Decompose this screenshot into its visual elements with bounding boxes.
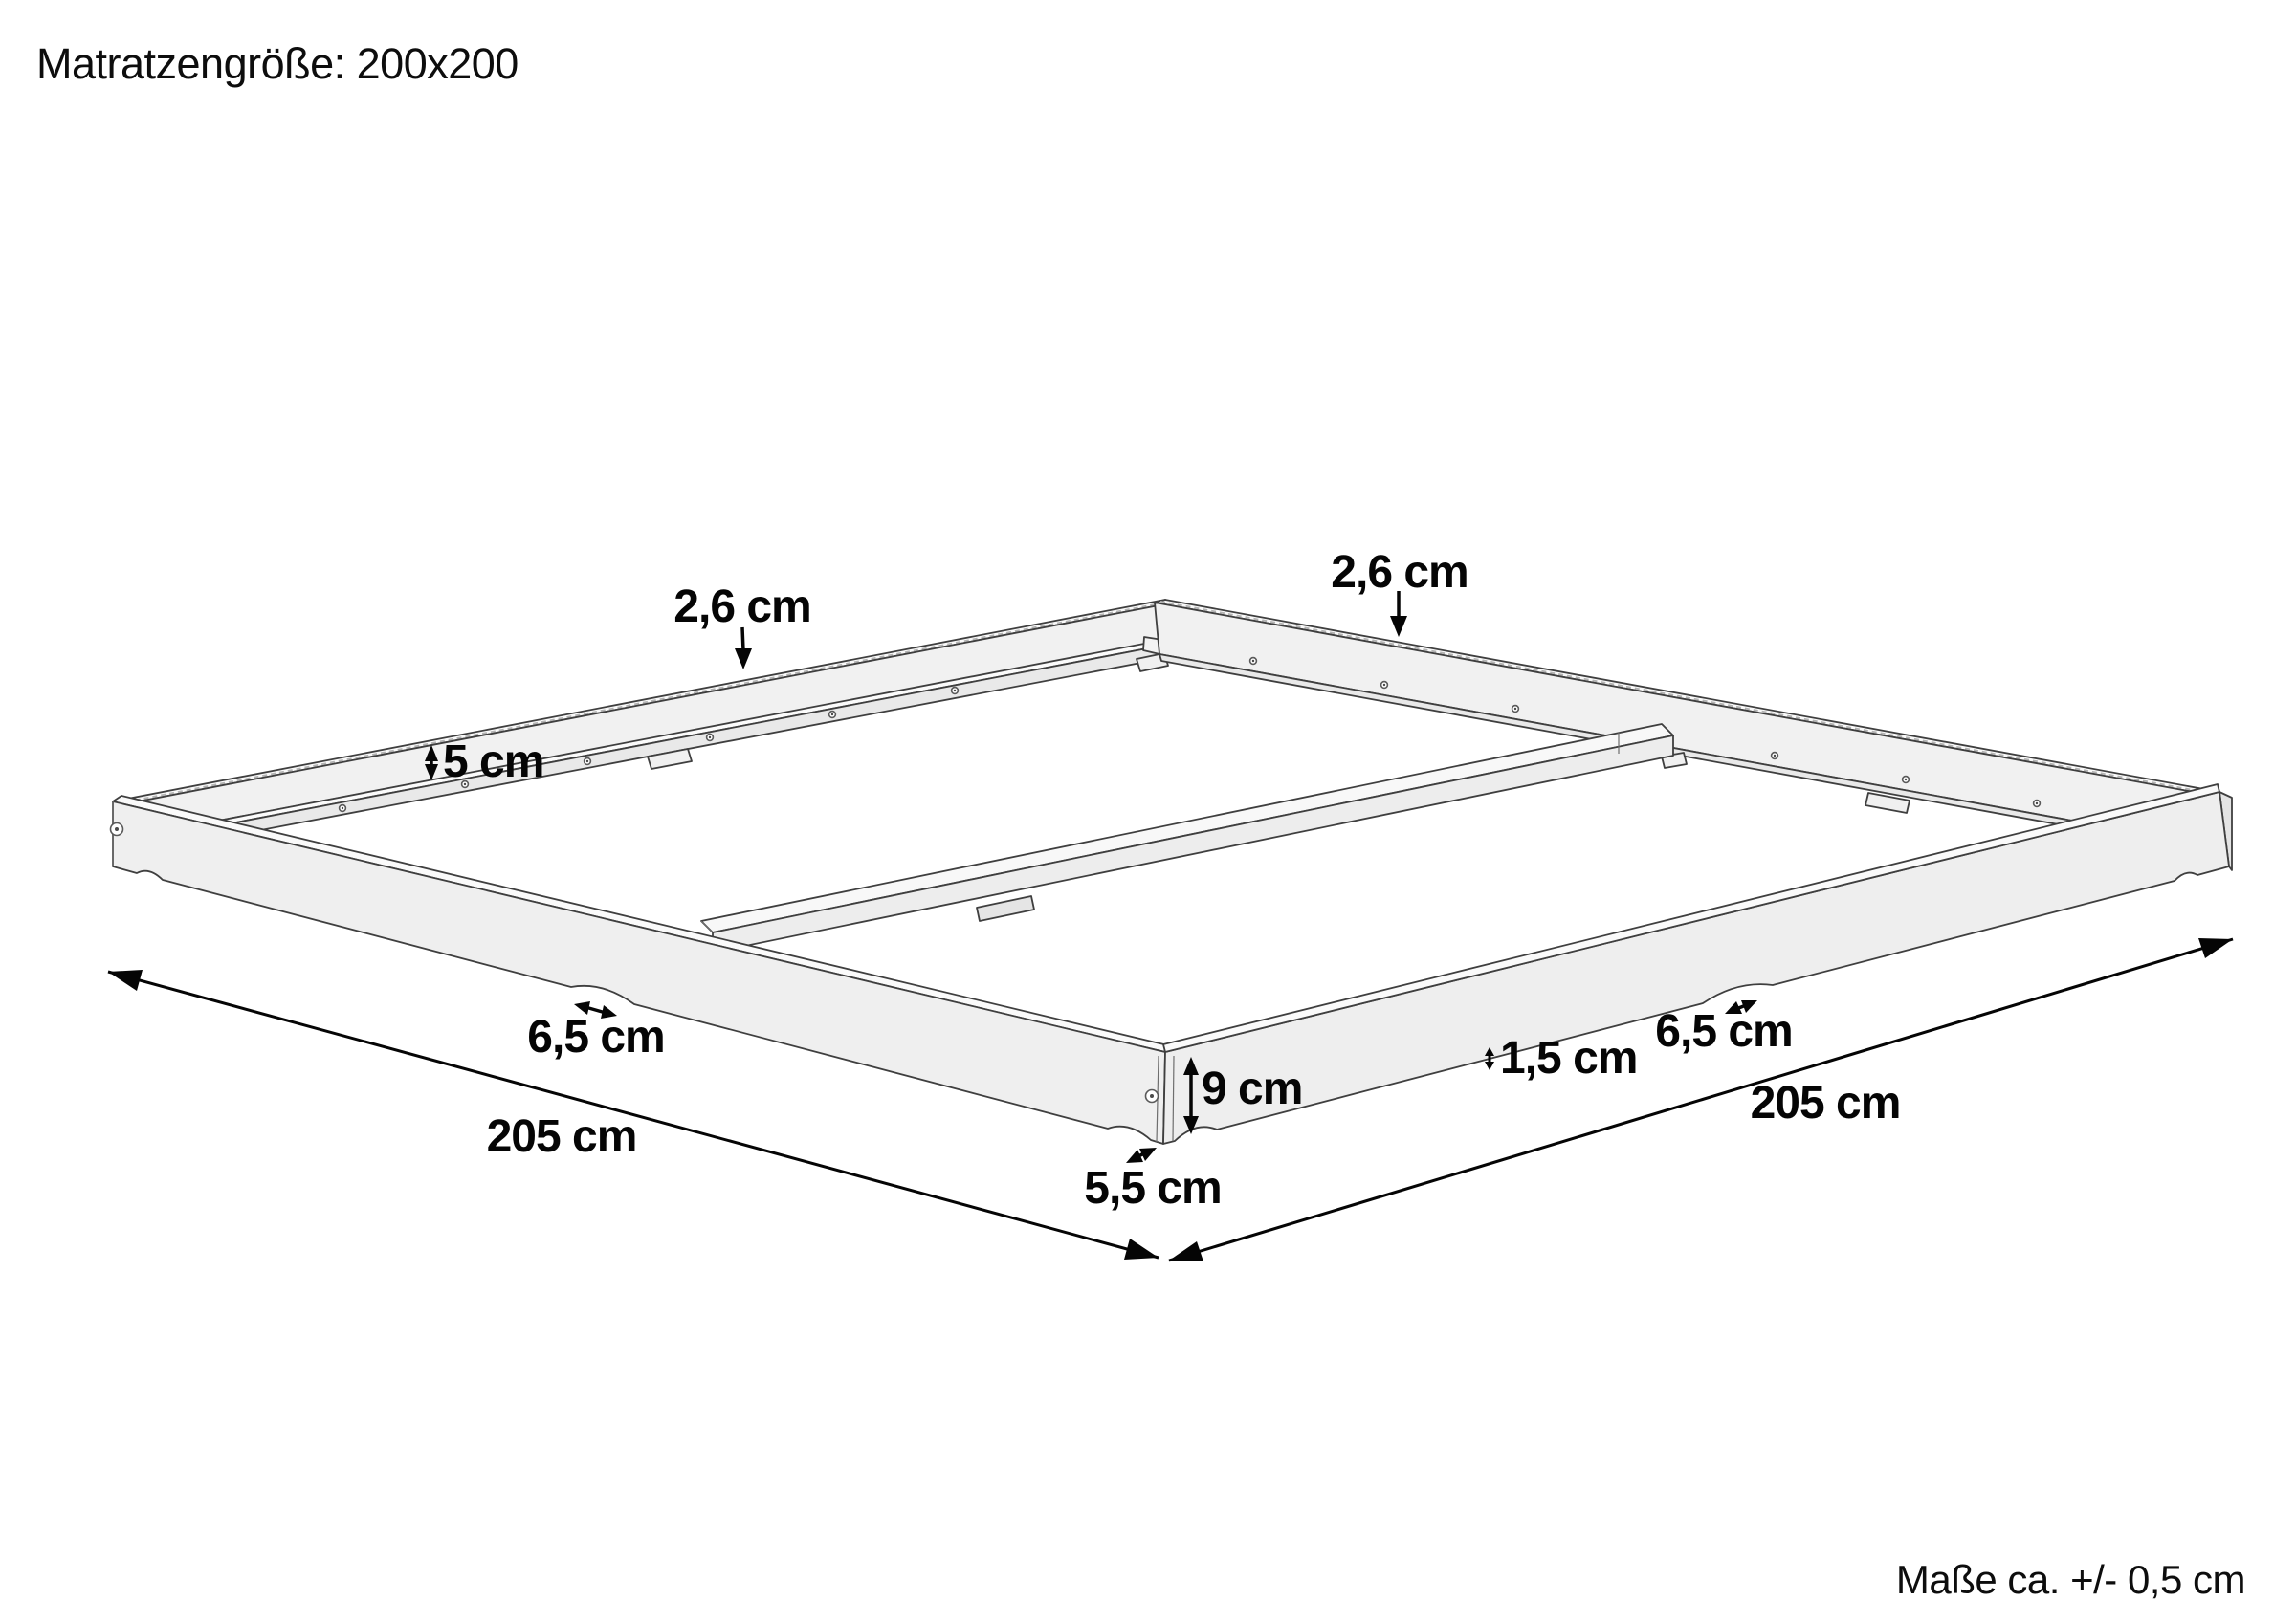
back-left-ledge-front <box>115 645 1167 858</box>
back-left-rail <box>113 600 1174 858</box>
label-rail-thickness-back-left: 2,6 cm <box>673 581 810 632</box>
label-bottom-edge-offset: 1,5 cm <box>1500 1033 1637 1084</box>
label-foot-cutout-left: 6,5 cm <box>527 1012 664 1063</box>
arrowhead <box>2198 938 2233 958</box>
label-outer-length-left: 205 cm <box>487 1111 637 1162</box>
arrowhead <box>1124 1239 1159 1260</box>
center-rail-foot-mid <box>977 896 1034 921</box>
tolerance-note: Maße ca. +/- 0,5 cm <box>1896 1557 2245 1603</box>
label-inner-side-height: 5 cm <box>443 736 543 787</box>
arrowhead <box>1169 1241 1203 1261</box>
front-right-rail-front-face <box>1163 792 2229 1144</box>
front-left-rail <box>111 796 1173 1144</box>
corner-screw-left-dot <box>115 827 119 831</box>
label-rail-thickness-back-right: 2,6 cm <box>1331 547 1468 598</box>
dimension-diagram-page: Matratzengröße: 200x200 <box>0 0 2296 1623</box>
back-left-rail-inner-face <box>119 603 1174 840</box>
front-left-rail-front-face <box>113 801 1165 1144</box>
arrow-thickness-back-left <box>735 627 752 669</box>
label-corner-foot-width: 5,5 cm <box>1084 1163 1221 1214</box>
label-outer-length-right: 205 cm <box>1751 1078 1901 1129</box>
front-right-rail <box>1146 784 2233 1144</box>
corner-screw-front-dot <box>1150 1094 1154 1098</box>
label-front-height: 9 cm <box>1202 1064 1302 1114</box>
center-rail-front-face <box>713 735 1673 953</box>
label-foot-cutout-right: 6,5 cm <box>1655 1006 1792 1057</box>
center-rail-top-face <box>701 724 1673 932</box>
arrow-thickness-back-right <box>1390 591 1407 637</box>
arrow-corner-foot-width <box>1126 1148 1157 1163</box>
center-rail <box>701 724 1687 953</box>
arrowhead <box>108 970 143 991</box>
bed-frame-diagram: 2,6 cm 2,6 cm 5 cm 6,5 cm 6,5 cm 205 cm … <box>0 0 2296 1623</box>
